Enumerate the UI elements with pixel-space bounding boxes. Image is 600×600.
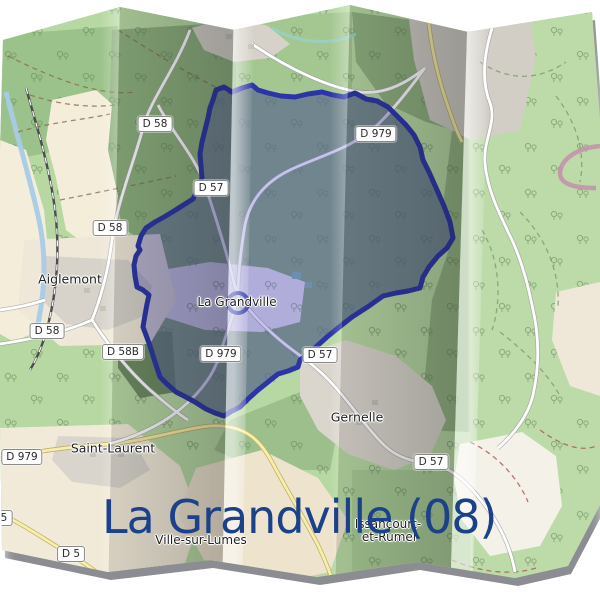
road-shield-d58-mid: D 58 [93,220,128,236]
folded-paper-map: D 58 D 979 D 57 D 58 D 58 D 58B D 979 D … [0,0,600,600]
road-shield-d58b: D 58B [102,344,144,360]
road-shield-d979-northeast: D 979 [355,126,396,142]
place-label-gernelle: Gernelle [331,410,384,425]
place-label-la-grandville: La Grandville [197,295,276,309]
map-title: La Grandville (08) [102,490,496,544]
road-shield-d5: D 5 [57,546,85,562]
folded-map-stage: D 58 D 979 D 57 D 58 D 58 D 58B D 979 D … [0,0,600,600]
road-shield-d58-north: D 58 [138,116,173,132]
place-label-saint-laurent: Saint-Laurent [71,441,155,456]
road-shield-d979-center: D 979 [200,346,241,362]
road-shield-d5-clipped: 5 [0,510,12,526]
road-shield-d57-north: D 57 [194,180,229,196]
road-shield-d979-southwest: D 979 [1,449,42,465]
road-shield-d57-center: D 57 [303,347,338,363]
place-label-aiglemont: Aiglemont [38,272,102,287]
road-shield-d58-west: D 58 [30,323,65,339]
road-shield-d57-southeast: D 57 [414,454,449,470]
